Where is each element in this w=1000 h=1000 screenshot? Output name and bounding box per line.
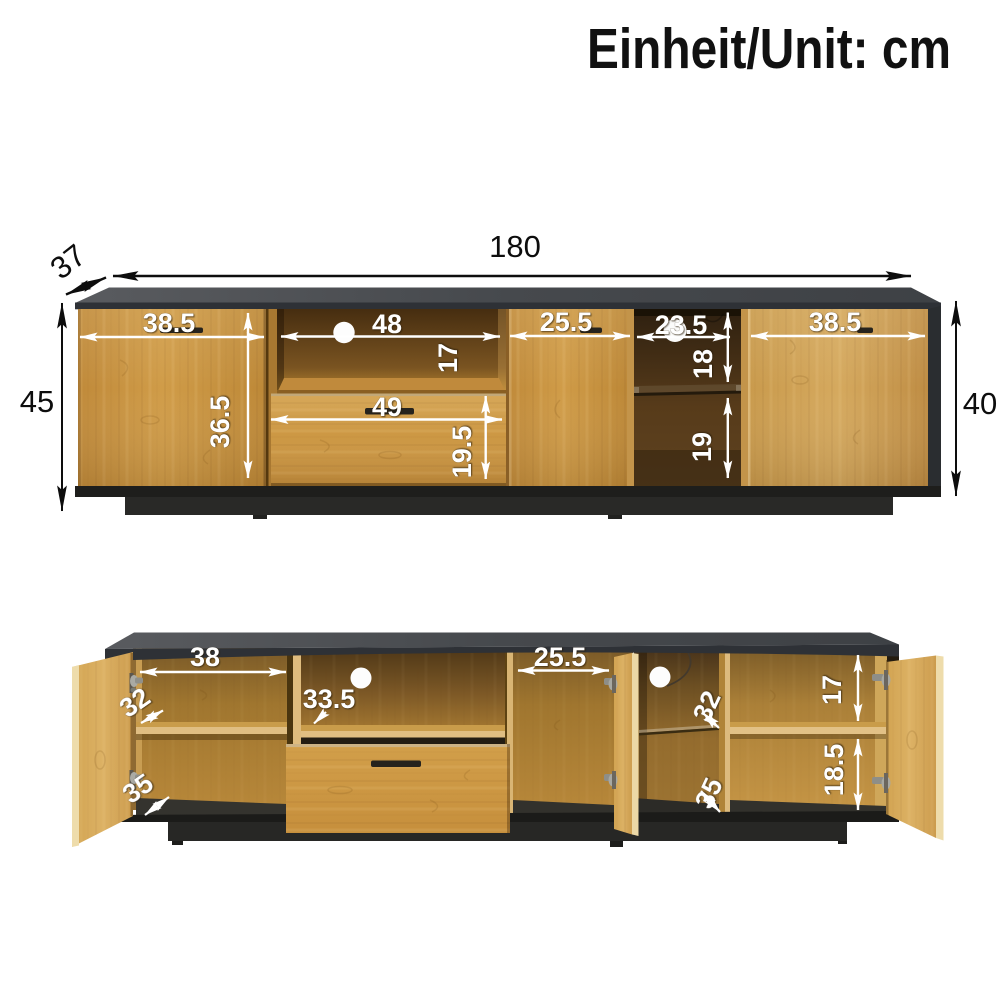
svg-text:36.5: 36.5 (205, 396, 235, 449)
svg-text:33.5: 33.5 (303, 684, 356, 714)
svg-text:19: 19 (687, 432, 717, 462)
svg-text:48: 48 (372, 309, 402, 339)
svg-text:25.5: 25.5 (534, 642, 587, 672)
svg-text:18: 18 (688, 349, 718, 379)
svg-text:25.5: 25.5 (540, 307, 593, 337)
svg-text:49: 49 (372, 392, 402, 422)
svg-text:18.5: 18.5 (819, 744, 849, 797)
svg-text:45: 45 (20, 384, 54, 419)
svg-text:38.5: 38.5 (143, 308, 196, 338)
svg-text:180: 180 (489, 229, 541, 264)
svg-text:38: 38 (190, 642, 220, 672)
svg-text:17: 17 (433, 343, 463, 373)
svg-text:Einheit/Unit: cm: Einheit/Unit: cm (587, 17, 951, 81)
svg-text:19.5: 19.5 (447, 426, 477, 479)
svg-text:23.5: 23.5 (655, 310, 708, 340)
svg-text:40: 40 (963, 386, 997, 421)
svg-text:17: 17 (817, 675, 847, 705)
svg-text:38.5: 38.5 (809, 307, 862, 337)
